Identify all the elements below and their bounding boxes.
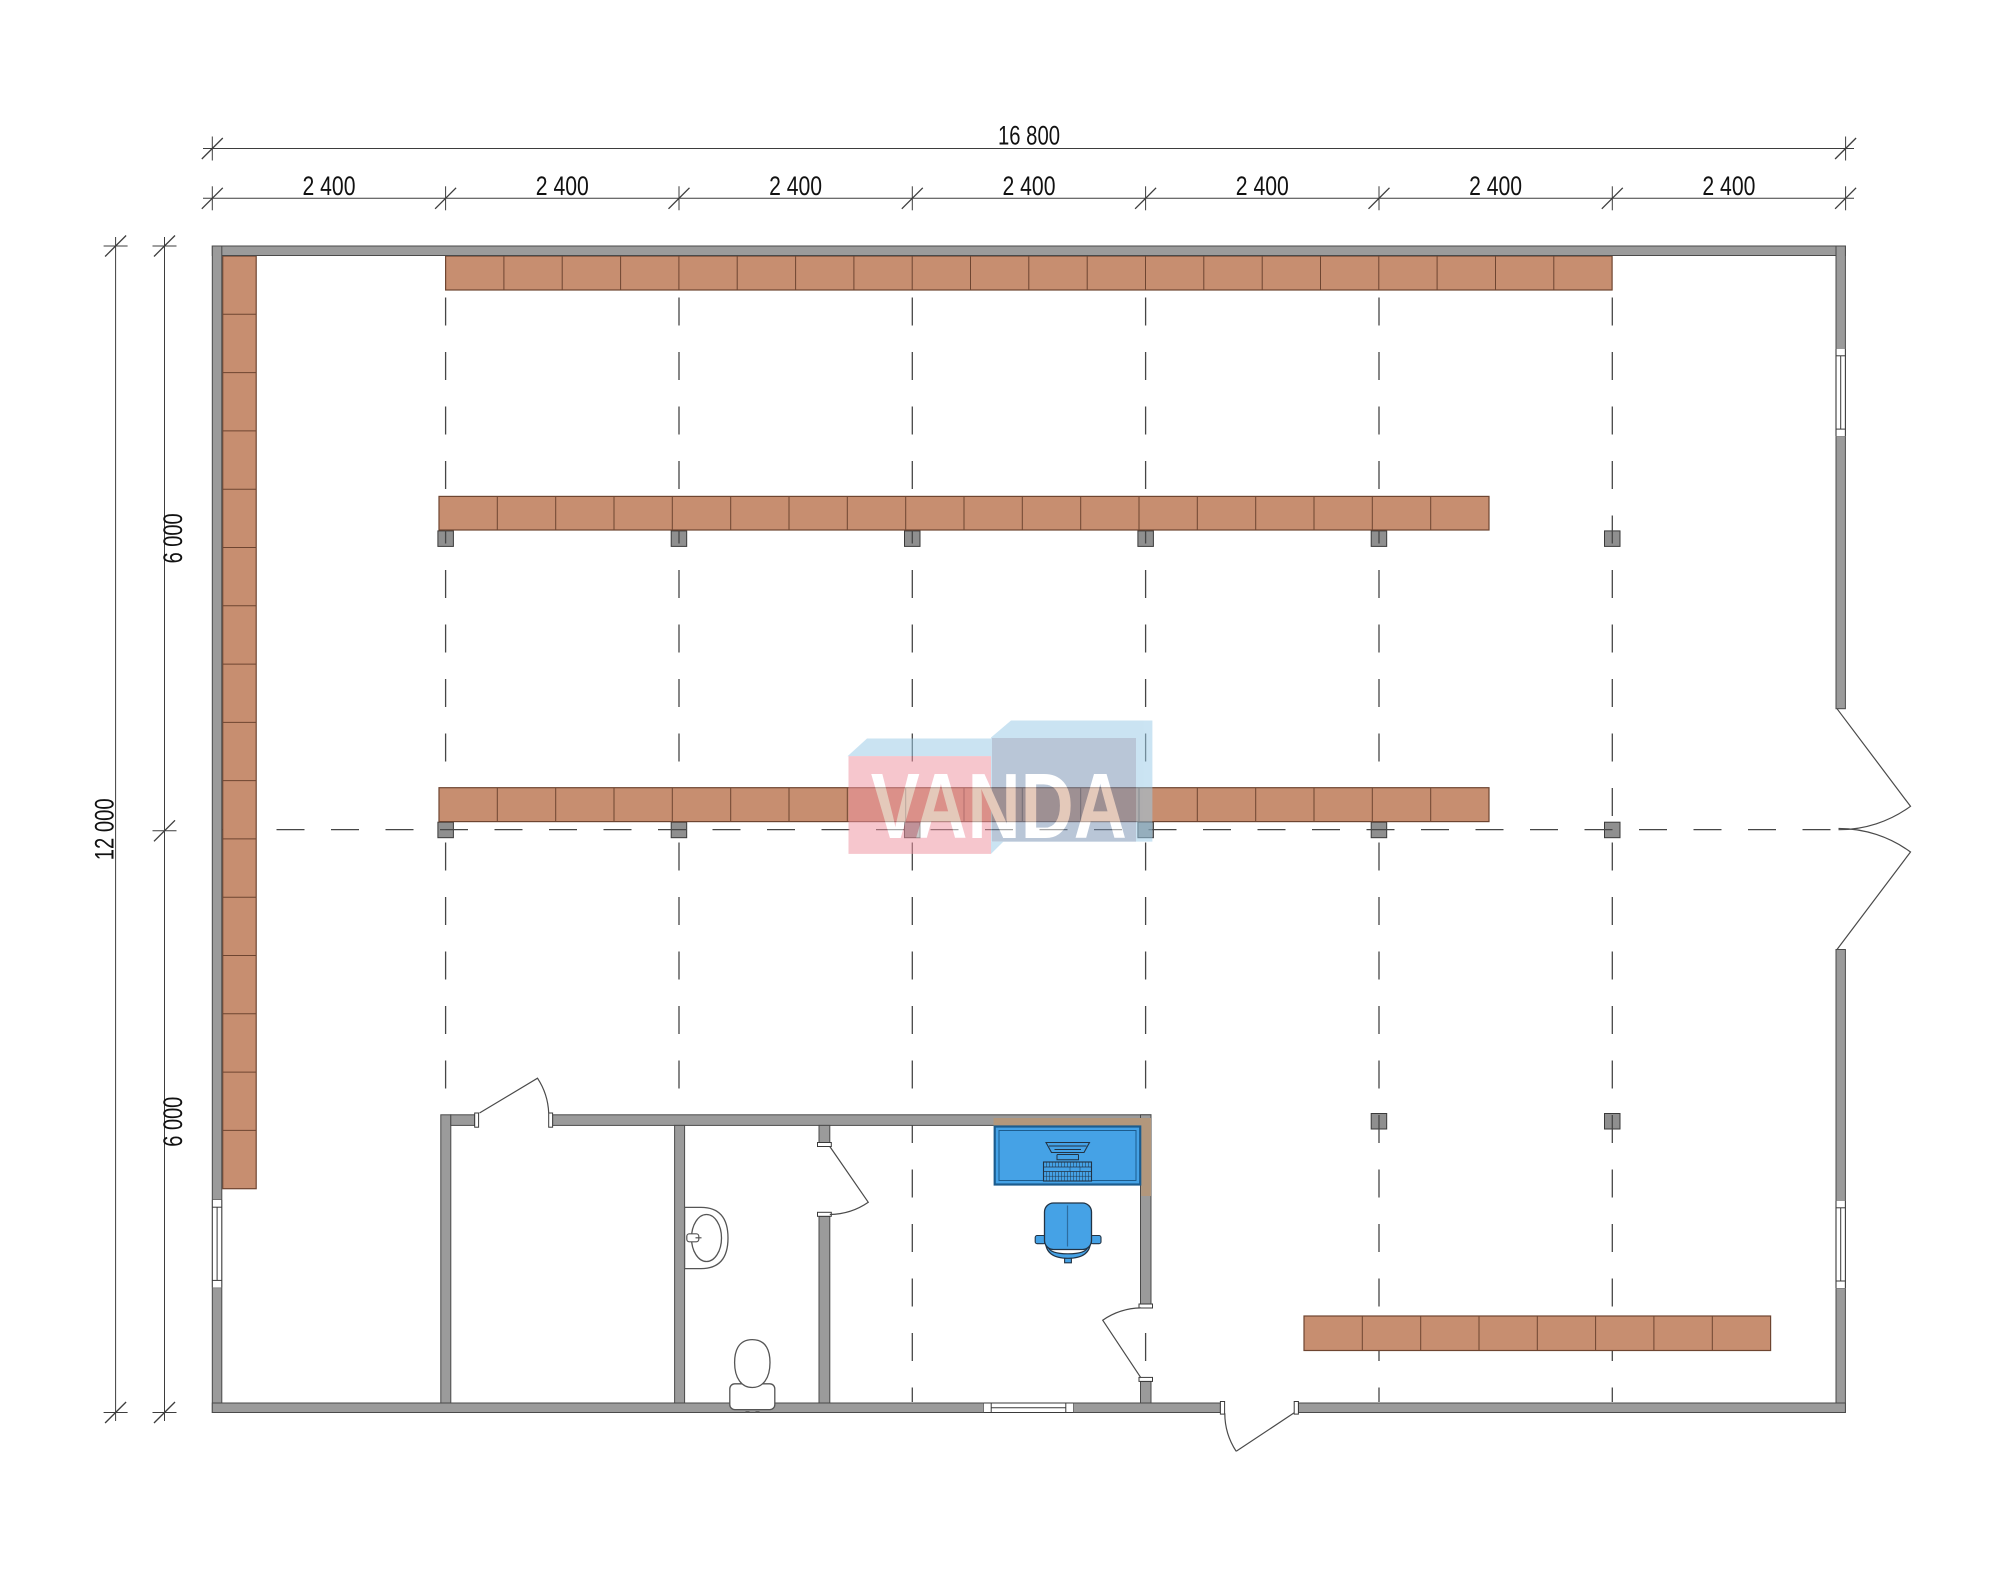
svg-text:VANDA: VANDA [871, 754, 1127, 858]
svg-text:6 000: 6 000 [158, 513, 188, 563]
svg-text:16 800: 16 800 [998, 121, 1060, 151]
svg-text:2 400: 2 400 [769, 171, 822, 201]
svg-text:12 000: 12 000 [90, 798, 120, 860]
svg-text:2 400: 2 400 [1236, 171, 1289, 201]
svg-text:6 000: 6 000 [158, 1097, 188, 1147]
svg-text:2 400: 2 400 [303, 171, 356, 201]
svg-text:2 400: 2 400 [1003, 171, 1056, 201]
svg-text:2 400: 2 400 [536, 171, 589, 201]
svg-text:2 400: 2 400 [1469, 171, 1522, 201]
svg-text:2 400: 2 400 [1702, 171, 1755, 201]
